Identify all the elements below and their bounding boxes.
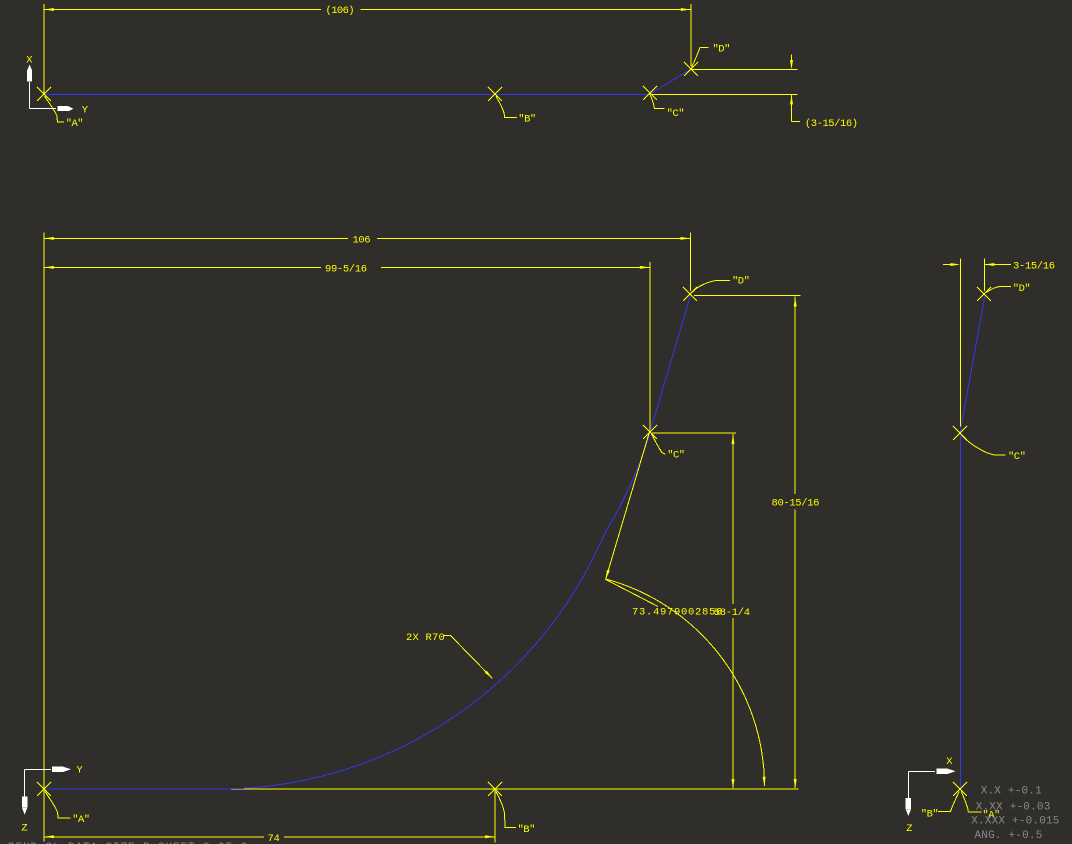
svg-text:X: X bbox=[26, 54, 33, 66]
svg-text:X: X bbox=[946, 756, 953, 768]
svg-text:"B": "B" bbox=[921, 809, 938, 821]
svg-text:X.XX +-0.03: X.XX +-0.03 bbox=[976, 801, 1051, 813]
svg-text:"C": "C" bbox=[667, 108, 684, 120]
svg-text:Z: Z bbox=[21, 822, 27, 834]
svg-text:106: 106 bbox=[353, 234, 371, 246]
svg-text:"C": "C" bbox=[667, 450, 684, 462]
svg-text:2X R70: 2X R70 bbox=[406, 632, 445, 644]
svg-text:80-15/16: 80-15/16 bbox=[772, 497, 820, 509]
svg-text:99-5/16: 99-5/16 bbox=[325, 263, 367, 275]
svg-text:74: 74 bbox=[268, 833, 280, 844]
svg-text:X.X +-0.1: X.X +-0.1 bbox=[981, 785, 1042, 797]
svg-text:"D": "D" bbox=[713, 44, 730, 56]
svg-text:"D": "D" bbox=[732, 275, 749, 287]
svg-text:ANG. +-0.5: ANG. +-0.5 bbox=[975, 830, 1043, 842]
svg-text:"D": "D" bbox=[1013, 283, 1030, 295]
svg-text:3-15/16: 3-15/16 bbox=[1013, 260, 1055, 272]
svg-text:"B": "B" bbox=[518, 114, 535, 126]
svg-text:"A": "A" bbox=[66, 118, 83, 130]
svg-text:"C": "C" bbox=[1008, 451, 1025, 463]
svg-text:(3-15/16): (3-15/16) bbox=[805, 118, 858, 130]
svg-text:"B": "B" bbox=[518, 824, 535, 836]
svg-text:Y: Y bbox=[76, 764, 83, 776]
svg-text:"A": "A" bbox=[72, 814, 89, 826]
svg-text:Y: Y bbox=[82, 105, 89, 117]
svg-text:X.XXX +-0.015: X.XXX +-0.015 bbox=[971, 816, 1059, 828]
svg-text:Z: Z bbox=[906, 823, 912, 835]
svg-text:(106): (106) bbox=[326, 5, 355, 17]
svg-text:73.4979002856: 73.4979002856 bbox=[632, 607, 723, 619]
